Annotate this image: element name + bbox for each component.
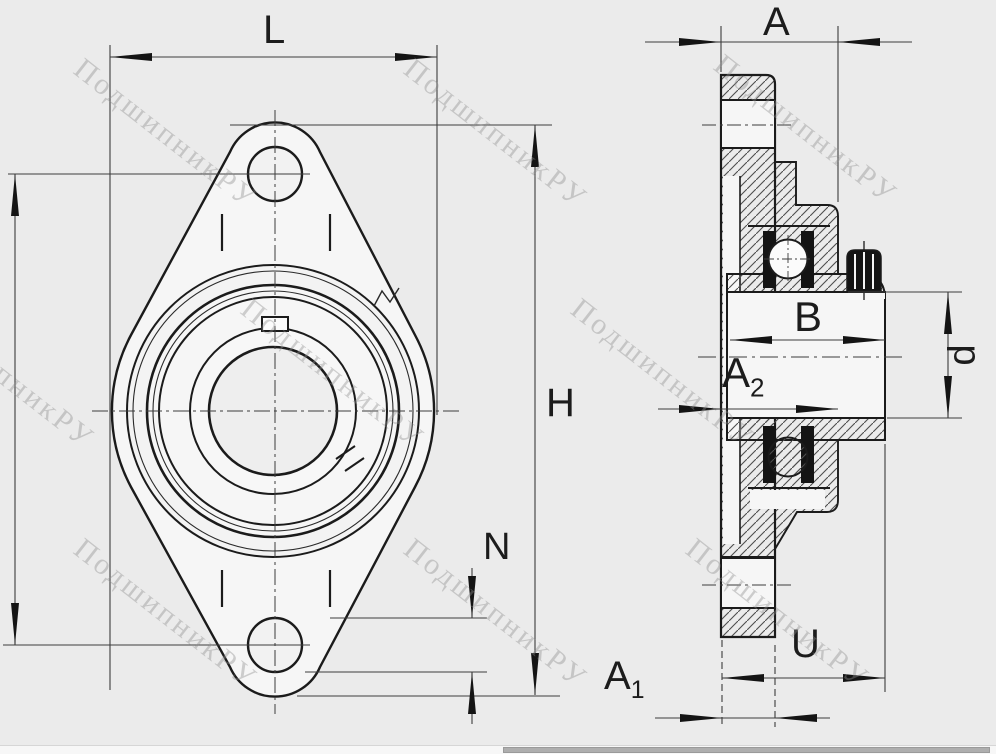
horizontal-scrollbar-thumb[interactable] — [503, 747, 990, 753]
dim-label-L: L — [263, 10, 285, 50]
dim-label-H: H — [546, 383, 575, 423]
dim-label-d: d — [944, 344, 982, 365]
housing-cavity — [750, 490, 825, 509]
dim-label-A1: A1 — [604, 656, 644, 704]
dim-label-A1-sub: 1 — [631, 677, 645, 704]
horizontal-scrollbar[interactable] — [0, 745, 996, 754]
dim-label-A2: A2 — [722, 352, 765, 400]
dim-label-A2-base: A — [722, 349, 750, 396]
dim-label-N: N — [483, 528, 510, 566]
dim-label-A2-sub: 2 — [750, 372, 764, 402]
drawing-page: L A H N B A2 d U A1 ПодшипникРУ Подшипни… — [0, 0, 996, 754]
dim-label-B: B — [794, 296, 822, 338]
dim-label-A: A — [763, 2, 790, 42]
dim-label-A1-base: A — [604, 654, 631, 698]
set-screw — [847, 241, 881, 300]
ball-lower — [769, 438, 808, 477]
